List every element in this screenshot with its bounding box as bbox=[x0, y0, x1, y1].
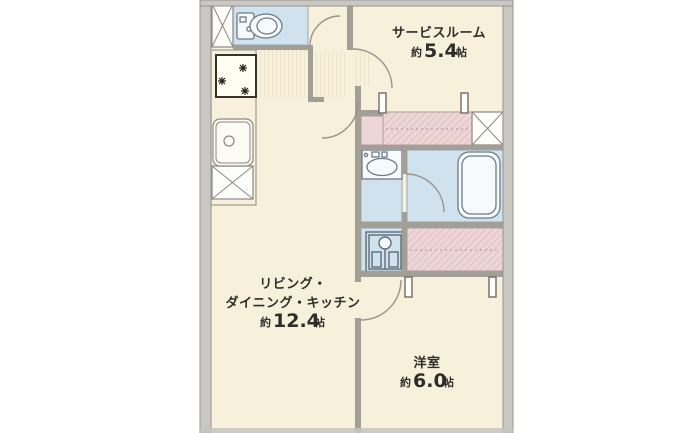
floor-plan-image: サービスルーム 約 5.4 帖 リビング・ ダイニング・キッチン 約 12.4 … bbox=[0, 0, 700, 433]
western-room-label: 洋室 bbox=[413, 355, 440, 371]
bottom-wall-hint bbox=[200, 428, 513, 433]
closet-small bbox=[361, 116, 383, 145]
bathtub-icon bbox=[458, 152, 500, 218]
x-box-icon bbox=[212, 4, 233, 47]
x-box-icon bbox=[472, 112, 503, 145]
ldk-label-line1: リビング・ bbox=[259, 276, 327, 292]
ldk-label-line2: ダイニング・キッチン bbox=[225, 295, 360, 311]
service-room-label: サービスルーム bbox=[392, 25, 486, 41]
floor-plan-svg: サービスルーム 約 5.4 帖 リビング・ ダイニング・キッチン 約 12.4 … bbox=[0, 0, 700, 433]
gas-stove-icon bbox=[216, 55, 256, 97]
x-box-icon bbox=[212, 166, 253, 199]
kitchen-sink-icon bbox=[213, 119, 253, 166]
washbasin-icon bbox=[362, 150, 402, 179]
toilet-icon bbox=[237, 13, 282, 39]
